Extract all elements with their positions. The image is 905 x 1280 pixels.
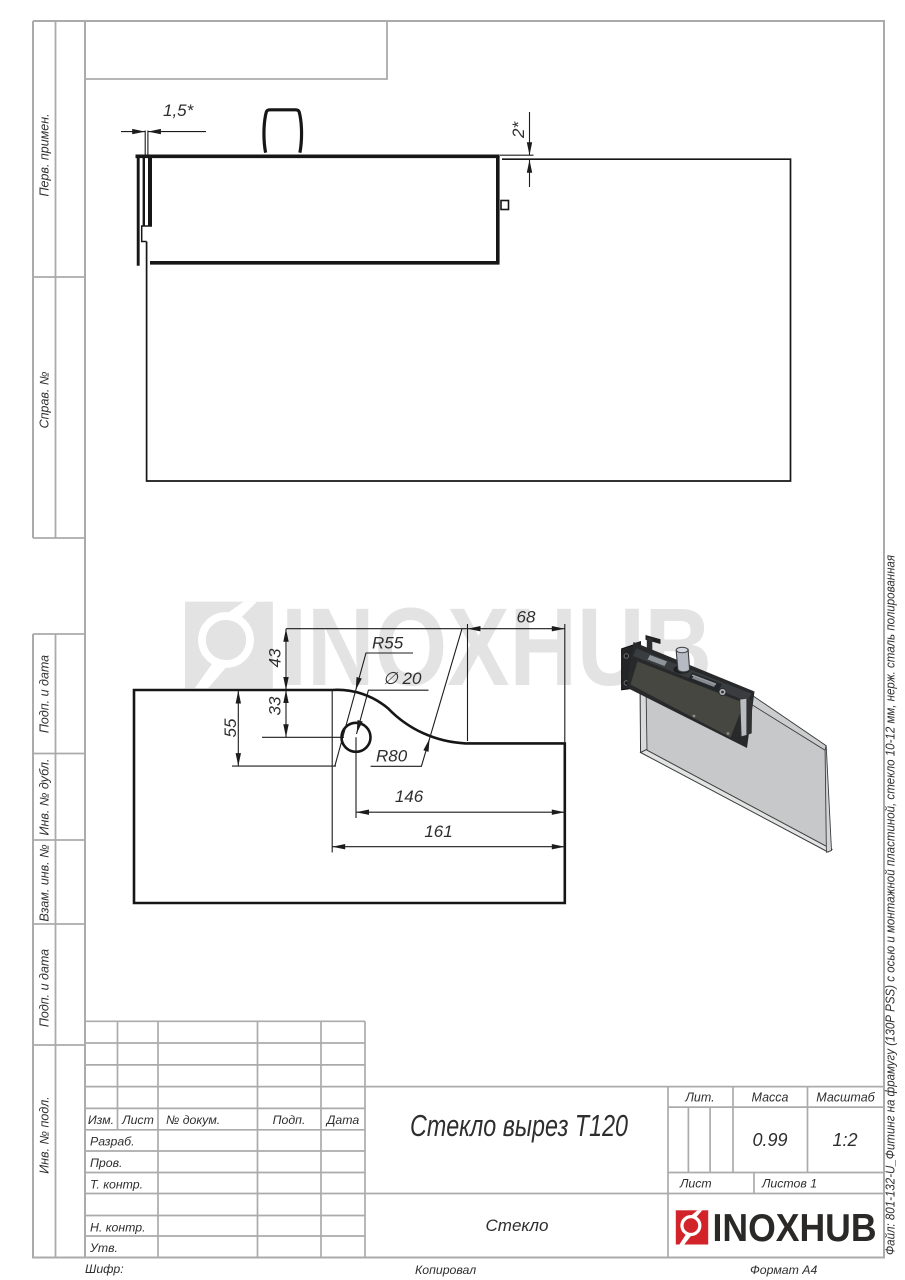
svg-text:Шифр:: Шифр:: [85, 1262, 124, 1276]
svg-text:Файл: 801-132-U_Фитинг на фрам: Файл: 801-132-U_Фитинг на фрамугу (130Р …: [884, 555, 898, 1255]
svg-text:Разраб.: Разраб.: [90, 1135, 135, 1149]
svg-text:R80: R80: [376, 747, 408, 766]
svg-text:Дата: Дата: [325, 1113, 360, 1127]
svg-text:Н. контр.: Н. контр.: [90, 1221, 146, 1235]
svg-text:Масса: Масса: [752, 1091, 789, 1105]
svg-text:33: 33: [266, 696, 285, 715]
svg-text:Изм.: Изм.: [88, 1113, 114, 1127]
svg-text:Лит.: Лит.: [684, 1091, 714, 1105]
svg-text:Формат А4: Формат А4: [750, 1263, 817, 1277]
svg-text:№ докум.: № докум.: [166, 1113, 220, 1127]
svg-text:Подп. и дата: Подп. и дата: [38, 655, 52, 733]
svg-text:0.99: 0.99: [752, 1130, 787, 1150]
svg-text:INOXHUB: INOXHUB: [713, 1207, 877, 1250]
svg-text:Перв. примен.: Перв. примен.: [38, 113, 52, 196]
svg-text:43: 43: [266, 648, 285, 667]
svg-text:Утв.: Утв.: [89, 1241, 118, 1255]
svg-text:Пров.: Пров.: [90, 1156, 122, 1170]
svg-text:Подп.: Подп.: [273, 1113, 306, 1127]
svg-text:55: 55: [221, 718, 240, 737]
svg-text:∅ 20: ∅ 20: [383, 669, 422, 688]
svg-text:1:2: 1:2: [832, 1130, 857, 1150]
svg-text:2*: 2*: [509, 121, 528, 139]
svg-text:Справ. №: Справ. №: [38, 371, 52, 428]
svg-text:Масштаб: Масштаб: [816, 1091, 875, 1105]
svg-text:Стекло: Стекло: [486, 1216, 549, 1235]
svg-text:Инв. № подл.: Инв. № подл.: [38, 1096, 52, 1174]
svg-text:Листов 1: Листов 1: [761, 1177, 817, 1191]
svg-text:Лист: Лист: [679, 1177, 712, 1191]
svg-text:Копировал: Копировал: [415, 1263, 476, 1277]
svg-text:146: 146: [395, 787, 424, 806]
svg-text:R55: R55: [372, 634, 404, 653]
svg-text:Подп. и дата: Подп. и дата: [38, 949, 52, 1027]
svg-text:68: 68: [517, 608, 536, 627]
svg-text:1,5*: 1,5*: [163, 101, 195, 120]
svg-text:Лист: Лист: [121, 1113, 154, 1127]
svg-text:Стекло вырез Т120: Стекло вырез Т120: [410, 1108, 628, 1143]
svg-text:161: 161: [424, 822, 452, 841]
svg-text:Взам. инв. №: Взам. инв. №: [38, 844, 52, 922]
svg-text:Т. контр.: Т. контр.: [90, 1178, 143, 1192]
svg-text:Инв. № дубл.: Инв. № дубл.: [38, 759, 52, 836]
